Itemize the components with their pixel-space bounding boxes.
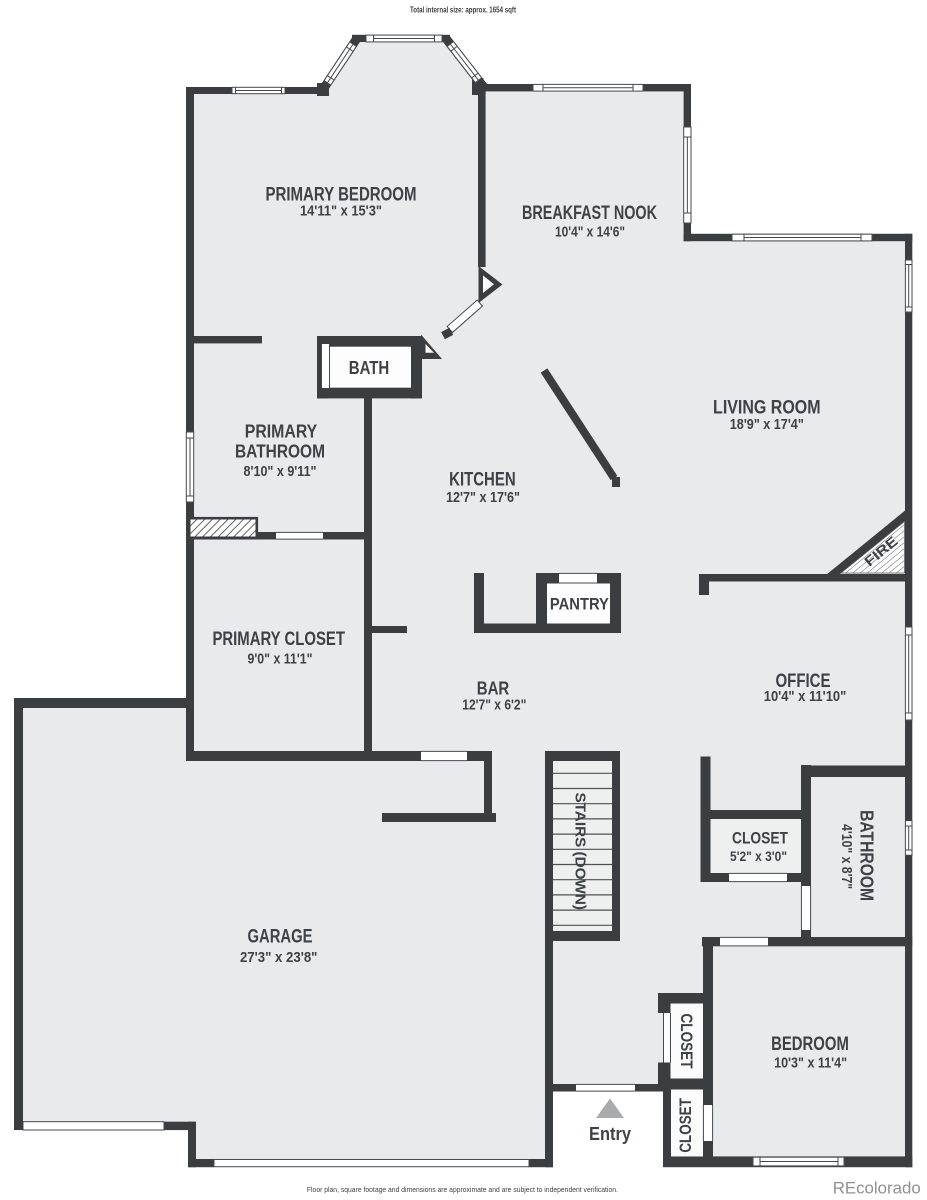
svg-text:STAIRS (DOWN): STAIRS (DOWN) xyxy=(572,792,589,910)
svg-text:CLOSET: CLOSET xyxy=(676,1098,695,1153)
svg-text:14'11" x 15'3": 14'11" x 15'3" xyxy=(300,204,382,220)
svg-text:Entry: Entry xyxy=(589,1124,631,1144)
svg-text:Total internal size: approx. 1: Total internal size: approx. 1654 sqft xyxy=(410,5,516,15)
svg-text:LIVING ROOM: LIVING ROOM xyxy=(713,397,821,418)
svg-text:27'3" x 23'8": 27'3" x 23'8" xyxy=(240,950,318,966)
svg-text:KITCHEN: KITCHEN xyxy=(449,470,516,491)
svg-text:10'3" x 11'4": 10'3" x 11'4" xyxy=(774,1056,847,1072)
svg-text:10'4" x 14'6": 10'4" x 14'6" xyxy=(555,225,625,241)
svg-text:BATHROOM: BATHROOM xyxy=(857,810,877,901)
svg-text:PRIMARY CLOSET: PRIMARY CLOSET xyxy=(212,629,345,650)
svg-text:BREAKFAST NOOK: BREAKFAST NOOK xyxy=(522,203,657,224)
svg-text:GARAGE: GARAGE xyxy=(248,927,313,948)
svg-text:PRIMARY: PRIMARY xyxy=(245,421,318,442)
svg-text:8'10" x 9'11": 8'10" x 9'11" xyxy=(244,464,317,480)
svg-text:BATHROOM: BATHROOM xyxy=(235,441,325,462)
svg-text:PANTRY: PANTRY xyxy=(550,595,610,614)
svg-text:Floor plan, square footage and: Floor plan, square footage and dimension… xyxy=(307,1185,618,1194)
svg-text:BEDROOM: BEDROOM xyxy=(771,1034,849,1055)
svg-text:CLOSET: CLOSET xyxy=(732,829,788,848)
svg-text:BATH: BATH xyxy=(349,358,390,378)
svg-text:18'9" x 17'4": 18'9" x 17'4" xyxy=(730,417,804,433)
svg-text:10'4" x 11'10": 10'4" x 11'10" xyxy=(764,689,847,705)
svg-text:12'7" x 17'6": 12'7" x 17'6" xyxy=(446,490,520,506)
svg-text:12'7" x 6'2": 12'7" x 6'2" xyxy=(462,698,526,714)
svg-text:9'0" x 11'1": 9'0" x 11'1" xyxy=(248,652,313,668)
svg-text:4'10" x 8'7": 4'10" x 8'7" xyxy=(838,824,854,889)
svg-text:CLOSET: CLOSET xyxy=(677,1014,696,1069)
svg-text:PRIMARY BEDROOM: PRIMARY BEDROOM xyxy=(266,185,417,206)
svg-text:5'2" x 3'0": 5'2" x 3'0" xyxy=(730,848,787,864)
svg-text:REcolorado: REcolorado xyxy=(833,1179,921,1198)
svg-text:BAR: BAR xyxy=(477,679,510,699)
